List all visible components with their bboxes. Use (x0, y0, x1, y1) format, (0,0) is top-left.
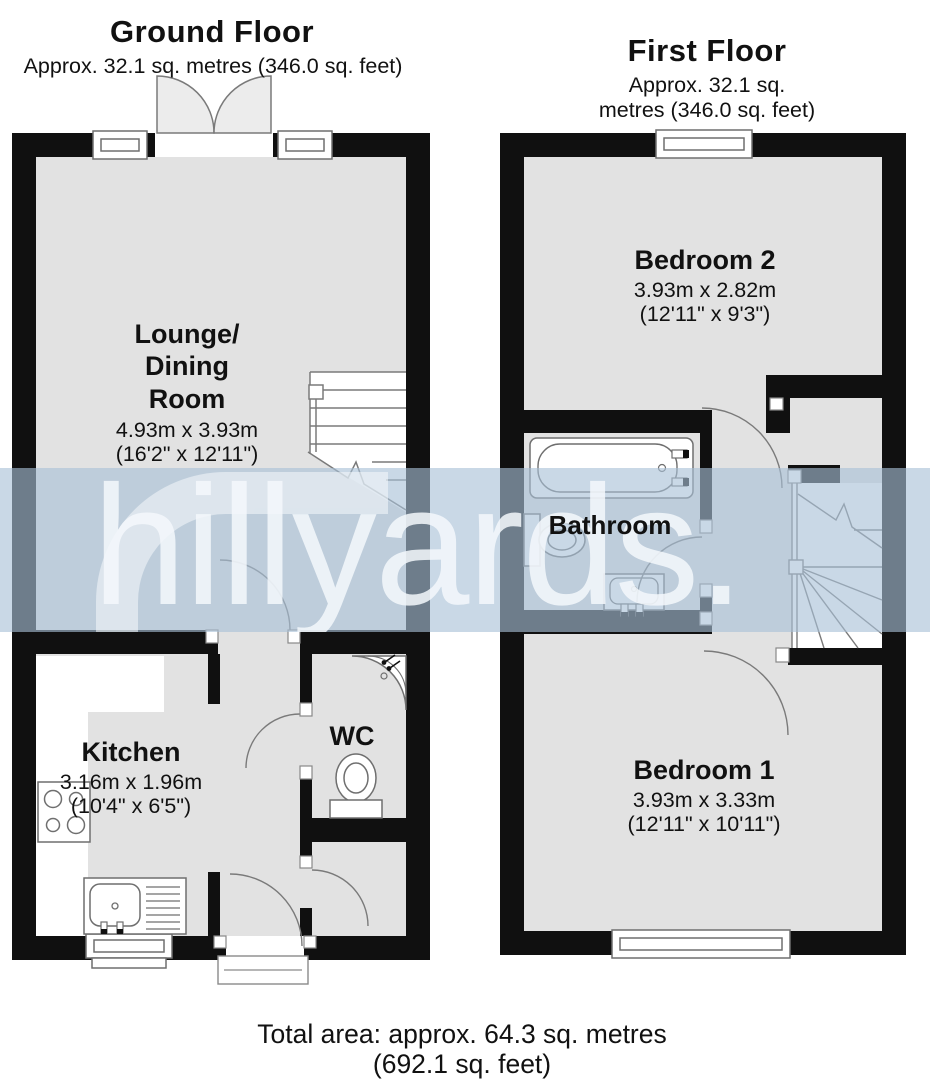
ground-floor-title: Ground Floor (110, 14, 314, 50)
kitchen-name: Kitchen (60, 736, 202, 768)
first-floor-area: Approx. 32.1 sq. metres (346.0 sq. feet) (596, 73, 819, 122)
lounge-label: Lounge/ Dining Room 4.93m x 3.93m (16'2"… (116, 318, 259, 466)
lounge-dims-imperial: (16'2" x 12'11") (116, 442, 259, 466)
lounge-dims-metric: 4.93m x 3.93m (116, 418, 259, 442)
total-area-text: Total area: approx. 64.3 sq. metres (692… (228, 1019, 696, 1080)
watermark-text: hillyards. (92, 468, 743, 632)
floorplan-page: hillyards. Ground Floor Approx. 32.1 sq.… (0, 0, 930, 1080)
kitchen-label: Kitchen 3.16m x 1.96m (10'4" x 6'5") (60, 736, 202, 819)
lounge-name: Lounge/ Dining Room (116, 318, 259, 415)
kitchen-dims-metric: 3.16m x 1.96m (60, 770, 202, 794)
bedroom2-name: Bedroom 2 (634, 244, 776, 276)
ground-floor-area: Approx. 32.1 sq. metres (346.0 sq. feet) (24, 54, 403, 79)
wc-label: WC (330, 720, 375, 752)
bathroom-label: Bathroom (549, 510, 672, 541)
patio-double-door-icon (157, 76, 271, 133)
kitchen-sink-icon (84, 878, 186, 934)
bedroom1-dims-metric: 3.93m x 3.33m (628, 788, 781, 812)
watermark-band: hillyards. (0, 468, 930, 632)
bedroom1-name: Bedroom 1 (628, 754, 781, 786)
bedroom2-dims-imperial: (12'11" x 9'3") (634, 302, 776, 326)
kitchen-dims-imperial: (10'4" x 6'5") (60, 794, 202, 818)
bedroom2-label: Bedroom 2 3.93m x 2.82m (12'11" x 9'3") (634, 244, 776, 327)
bedroom1-dims-imperial: (12'11" x 10'11") (628, 812, 781, 836)
first-floor-title: First Floor (628, 33, 787, 69)
patio-door-opening (155, 133, 273, 157)
bedroom2-dims-metric: 3.93m x 2.82m (634, 278, 776, 302)
front-door-threshold (218, 956, 308, 984)
bedroom1-label: Bedroom 1 3.93m x 3.33m (12'11" x 10'11"… (628, 754, 781, 837)
